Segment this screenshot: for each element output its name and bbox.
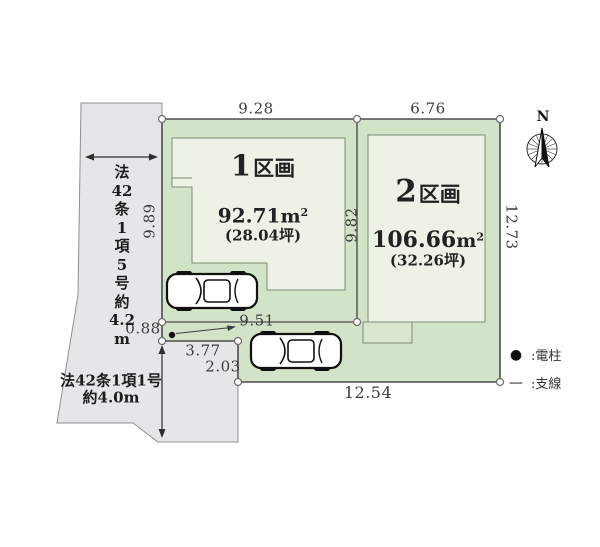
plot2-area: 106.66m2 bbox=[372, 229, 484, 251]
dim-plot1-top: 9.28 bbox=[238, 102, 273, 117]
plot2-tsubo: (32.26坪) bbox=[390, 254, 466, 269]
dim-bottom: 12.54 bbox=[344, 385, 392, 401]
compass-icon bbox=[527, 128, 557, 167]
road-bottom-label-line2: 約4.0m bbox=[83, 391, 140, 406]
plot1-number: 1 bbox=[231, 152, 251, 181]
dim-left: 9.89 bbox=[143, 203, 158, 238]
site-plan-canvas: 9.28 6.76 9.89 9.82 12.73 9.51 0.88 3.77… bbox=[0, 0, 600, 547]
legend-item-wire: — :支線 bbox=[505, 373, 561, 392]
plot2-number: 2 bbox=[395, 177, 417, 208]
plot1-suffix: 区画 bbox=[253, 158, 295, 179]
dim-plot1-bottom: 9.51 bbox=[239, 314, 274, 329]
road-left-label: 法 42 条 1 項 5 号 約 4.2 m bbox=[104, 163, 140, 348]
plot1-area: 92.71m2 bbox=[218, 206, 308, 227]
legend-wire-label: :支線 bbox=[531, 373, 561, 392]
guy-wire-legend-icon: — bbox=[505, 375, 527, 391]
site-plan-drawing bbox=[0, 0, 600, 547]
plot2-suffix: 区画 bbox=[419, 184, 461, 205]
dim-divider: 9.82 bbox=[345, 207, 360, 242]
dim-plot2-top: 6.76 bbox=[410, 102, 445, 117]
utility-pole-legend-icon: ● bbox=[505, 347, 527, 363]
car-icon-plot1 bbox=[167, 271, 257, 311]
car-icon-plot2 bbox=[251, 331, 341, 371]
plot2-title: 2区画 bbox=[395, 177, 461, 208]
legend-item-pole: ● :電柱 bbox=[505, 345, 561, 364]
plot1-tsubo: (28.04坪) bbox=[225, 229, 301, 244]
plot1-title: 1区画 bbox=[231, 152, 295, 181]
dim-notch-height: 2.03 bbox=[205, 360, 240, 375]
utility-pole-dot bbox=[169, 332, 175, 338]
compass-north-label: N bbox=[537, 110, 550, 124]
road-bottom-label-line1: 法42条1項1号 bbox=[60, 374, 162, 389]
dim-notch-width: 3.77 bbox=[185, 344, 220, 359]
legend: ● :電柱 — :支線 bbox=[505, 345, 561, 392]
legend-pole-label: :電柱 bbox=[531, 345, 561, 364]
dim-right: 12.73 bbox=[504, 204, 519, 249]
